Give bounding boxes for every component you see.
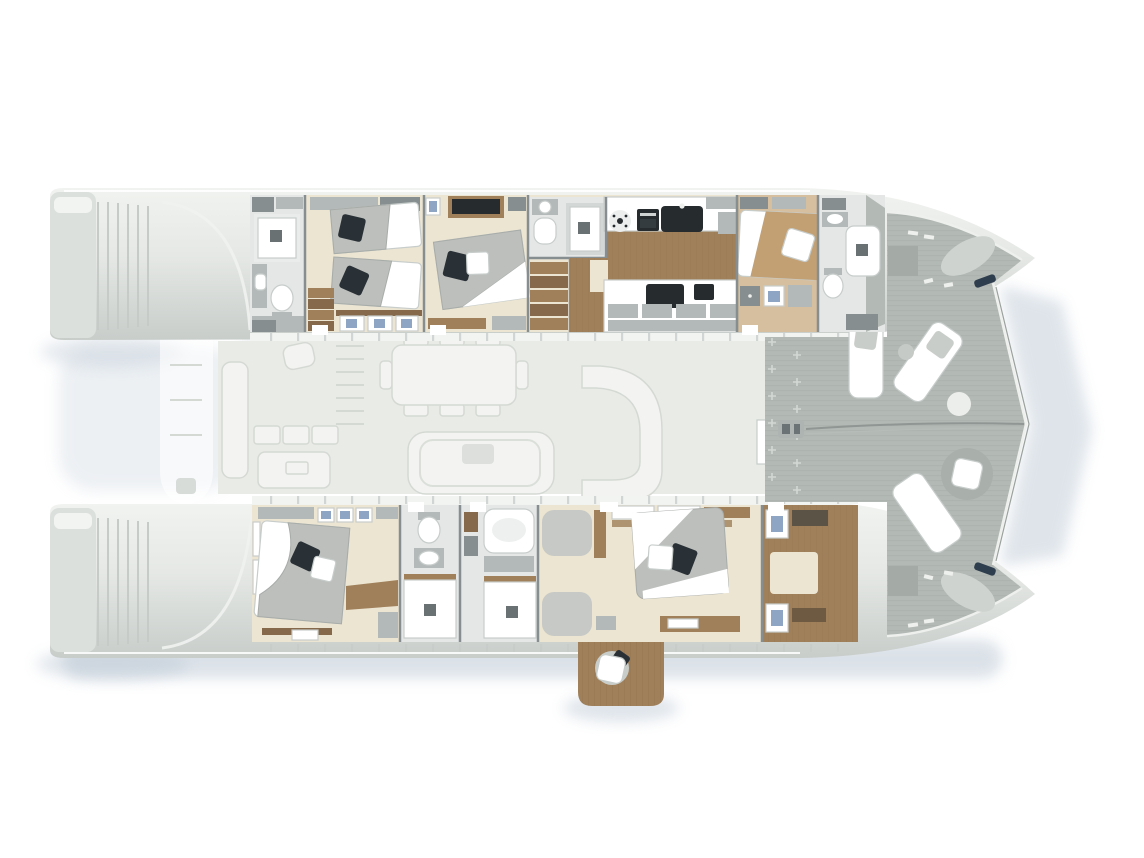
window-locker [764,286,784,306]
locker [492,316,526,330]
coffee-table-ghost [462,444,494,464]
washbasin [827,214,843,224]
corner-locker [766,604,788,632]
round-daybed [941,448,993,500]
king-bed [631,507,729,599]
cabin-windows [318,508,372,522]
storage-column [464,512,478,532]
corner-locker [766,510,788,538]
port-hull-cabins [250,195,885,335]
storage-column [464,536,478,556]
daybed-pillow [950,457,983,490]
forward-guest-cabin [737,195,821,332]
chaise-seat-top [542,510,592,556]
port-transom-highlight [54,197,92,213]
tender-outboard [176,478,196,494]
windlass [778,420,804,438]
shower [846,226,880,276]
ensuite-bathroom [528,197,606,258]
desk-tray [668,619,698,628]
deck-hatch-starboard [888,566,918,596]
pouf [898,344,914,360]
window-trim [336,310,422,316]
oven [637,209,659,231]
hull-windows [340,316,418,331]
deck-hatch-port [888,246,918,276]
cabinet-fronts [608,304,736,331]
starboard-transom [50,508,96,652]
locker [378,612,398,638]
starboard-transom-highlight [54,513,92,529]
shoe-shelf [792,608,826,622]
locker [276,197,303,209]
transom-bench-ghost [222,362,248,478]
front-load-washer [740,286,760,306]
washbasin [419,551,439,565]
fold-down-balcony [578,642,664,706]
washbasin [539,201,551,213]
counter [484,556,534,572]
shower-trim [484,576,536,582]
single-bed-1 [330,202,421,254]
seat-cushion-ghost [254,426,280,444]
counter-end [706,197,738,209]
overhead-locker [258,507,314,519]
companionway-stairs [530,258,570,332]
locker [376,507,398,519]
refrigerator [718,212,737,234]
shower-trim [404,574,456,580]
toilet [823,274,843,298]
toilet [271,285,293,311]
dining-table-ghost [392,345,516,405]
seat-cushion-ghost [312,426,338,444]
aft-bathroom [250,195,305,332]
microwave [694,284,714,300]
toilet [418,517,440,543]
toilet [534,218,556,244]
dining-chair-ghost [440,404,464,416]
pillow-white [310,556,336,582]
hull-window [292,630,318,640]
shower-drain [506,606,518,618]
dining-chair-ghost [476,404,500,416]
locker [252,320,276,332]
folded-clothes-shelf [792,510,828,526]
locker [740,197,768,209]
double-bed [254,521,350,624]
locker [252,197,274,212]
island-unit [770,552,818,594]
tv-screen [452,199,500,214]
bathtub [484,509,534,553]
double-bed [737,210,820,280]
dining-chair-ghost [516,361,528,389]
chaise-seat-bottom [542,592,592,636]
locker [772,197,806,209]
dining-chair-ghost [404,404,428,416]
pillow-white [648,545,674,571]
port-transom [50,192,96,338]
hanging-locker [788,285,812,307]
forward-bathroom [818,195,885,332]
catamaran-floorplan [0,0,1144,858]
guest-bathroom [400,505,460,642]
dining-chair-ghost [380,361,392,389]
washbasin [255,274,266,290]
double-sink [661,203,703,232]
walk-in-wardrobe [762,505,858,642]
shower-drain [270,230,282,242]
locker [596,616,616,630]
pouf-pillow [596,654,627,685]
faucet [679,203,684,208]
locker [508,197,526,211]
shower-drain [856,244,868,256]
single-bed-2 [331,257,422,309]
double-bed [433,230,530,310]
shower-drain [578,222,590,234]
washing-machine [609,210,631,232]
shelf-unit [594,510,606,558]
master-bathroom [460,505,538,642]
pillow-white [466,252,489,275]
locker [846,314,878,330]
seat-cushion-ghost [283,426,309,444]
shower-drain [424,604,436,616]
pouf-table [947,392,971,416]
cockpit-table-tray-ghost [286,462,308,474]
locker [822,198,846,210]
catamaran-floorplan-canvas [0,0,1144,858]
starboard-outer-mullions [254,644,854,652]
